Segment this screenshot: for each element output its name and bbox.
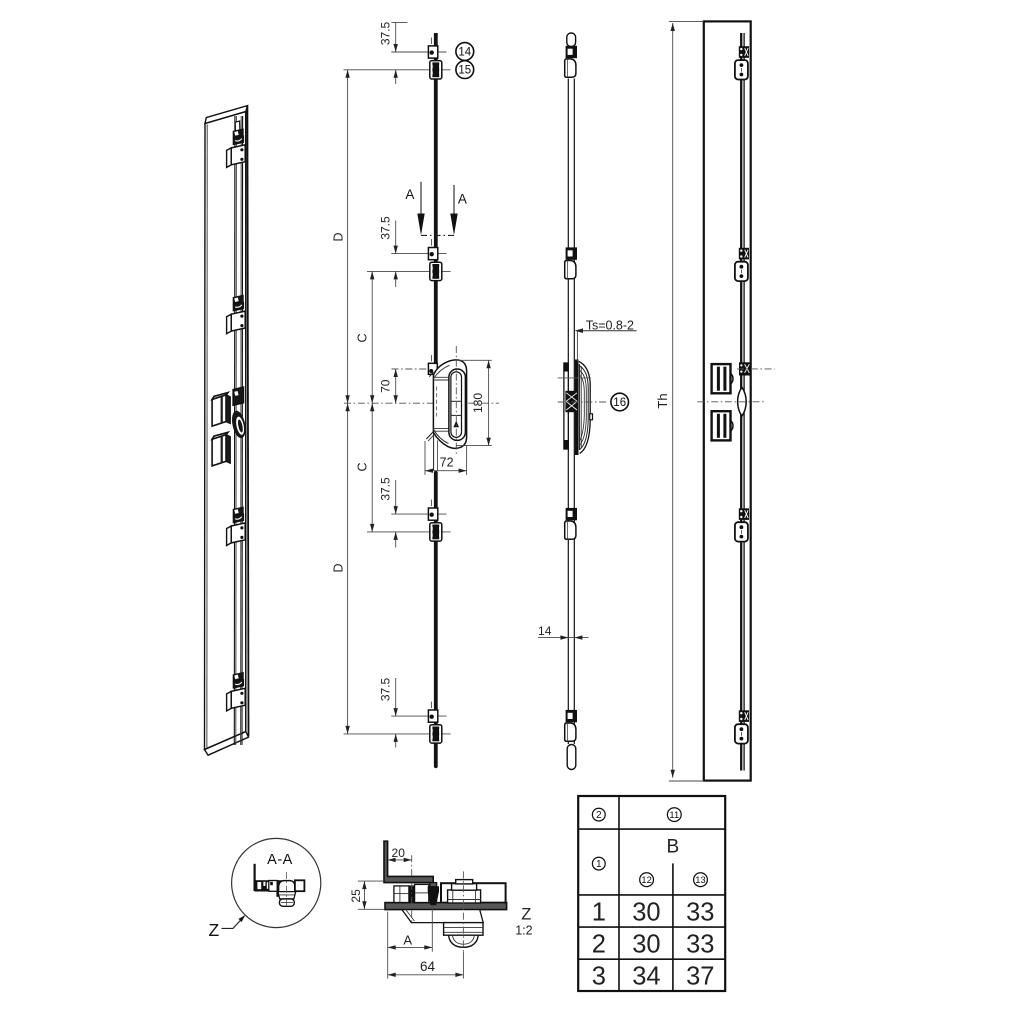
- svg-text:1: 1: [596, 859, 601, 870]
- svg-text:37: 37: [686, 963, 714, 991]
- svg-text:Z: Z: [209, 920, 220, 940]
- svg-text:20: 20: [392, 846, 406, 860]
- svg-text:D: D: [331, 563, 345, 572]
- svg-text:33: 33: [686, 899, 714, 927]
- svg-text:A-A: A-A: [267, 852, 293, 868]
- svg-text:2: 2: [596, 810, 601, 821]
- svg-text:A: A: [403, 932, 412, 947]
- svg-text:C: C: [356, 333, 370, 342]
- svg-text:11: 11: [669, 809, 679, 820]
- svg-text:37.5: 37.5: [378, 677, 392, 701]
- svg-text:A: A: [405, 187, 414, 202]
- svg-text:72: 72: [440, 456, 454, 470]
- svg-text:37.5: 37.5: [378, 21, 392, 45]
- svg-text:16: 16: [613, 397, 626, 409]
- svg-text:25: 25: [349, 889, 363, 903]
- svg-text:Z: Z: [521, 906, 531, 924]
- svg-text:14: 14: [538, 624, 552, 638]
- svg-text:C: C: [356, 462, 370, 471]
- svg-text:34: 34: [632, 963, 660, 991]
- svg-text:Th: Th: [655, 393, 670, 408]
- svg-text:64: 64: [420, 959, 436, 974]
- svg-text:12: 12: [641, 874, 651, 885]
- svg-text:30: 30: [632, 899, 660, 927]
- svg-text:D: D: [331, 232, 345, 241]
- svg-text:3: 3: [592, 963, 606, 991]
- svg-text:2: 2: [592, 931, 606, 959]
- svg-text:37.5: 37.5: [378, 216, 392, 240]
- svg-text:A: A: [458, 192, 467, 207]
- svg-text:13: 13: [695, 874, 705, 885]
- svg-text:180: 180: [471, 393, 485, 413]
- svg-text:37.5: 37.5: [378, 477, 392, 501]
- svg-text:15: 15: [458, 65, 471, 77]
- svg-text:1:2: 1:2: [515, 924, 532, 938]
- svg-text:30: 30: [632, 931, 660, 959]
- svg-text:70: 70: [378, 379, 392, 393]
- svg-text:14: 14: [458, 47, 471, 59]
- svg-text:1: 1: [592, 899, 606, 927]
- svg-text:33: 33: [686, 931, 714, 959]
- svg-text:Ts=0.8-2: Ts=0.8-2: [586, 318, 634, 332]
- svg-text:B: B: [667, 837, 680, 858]
